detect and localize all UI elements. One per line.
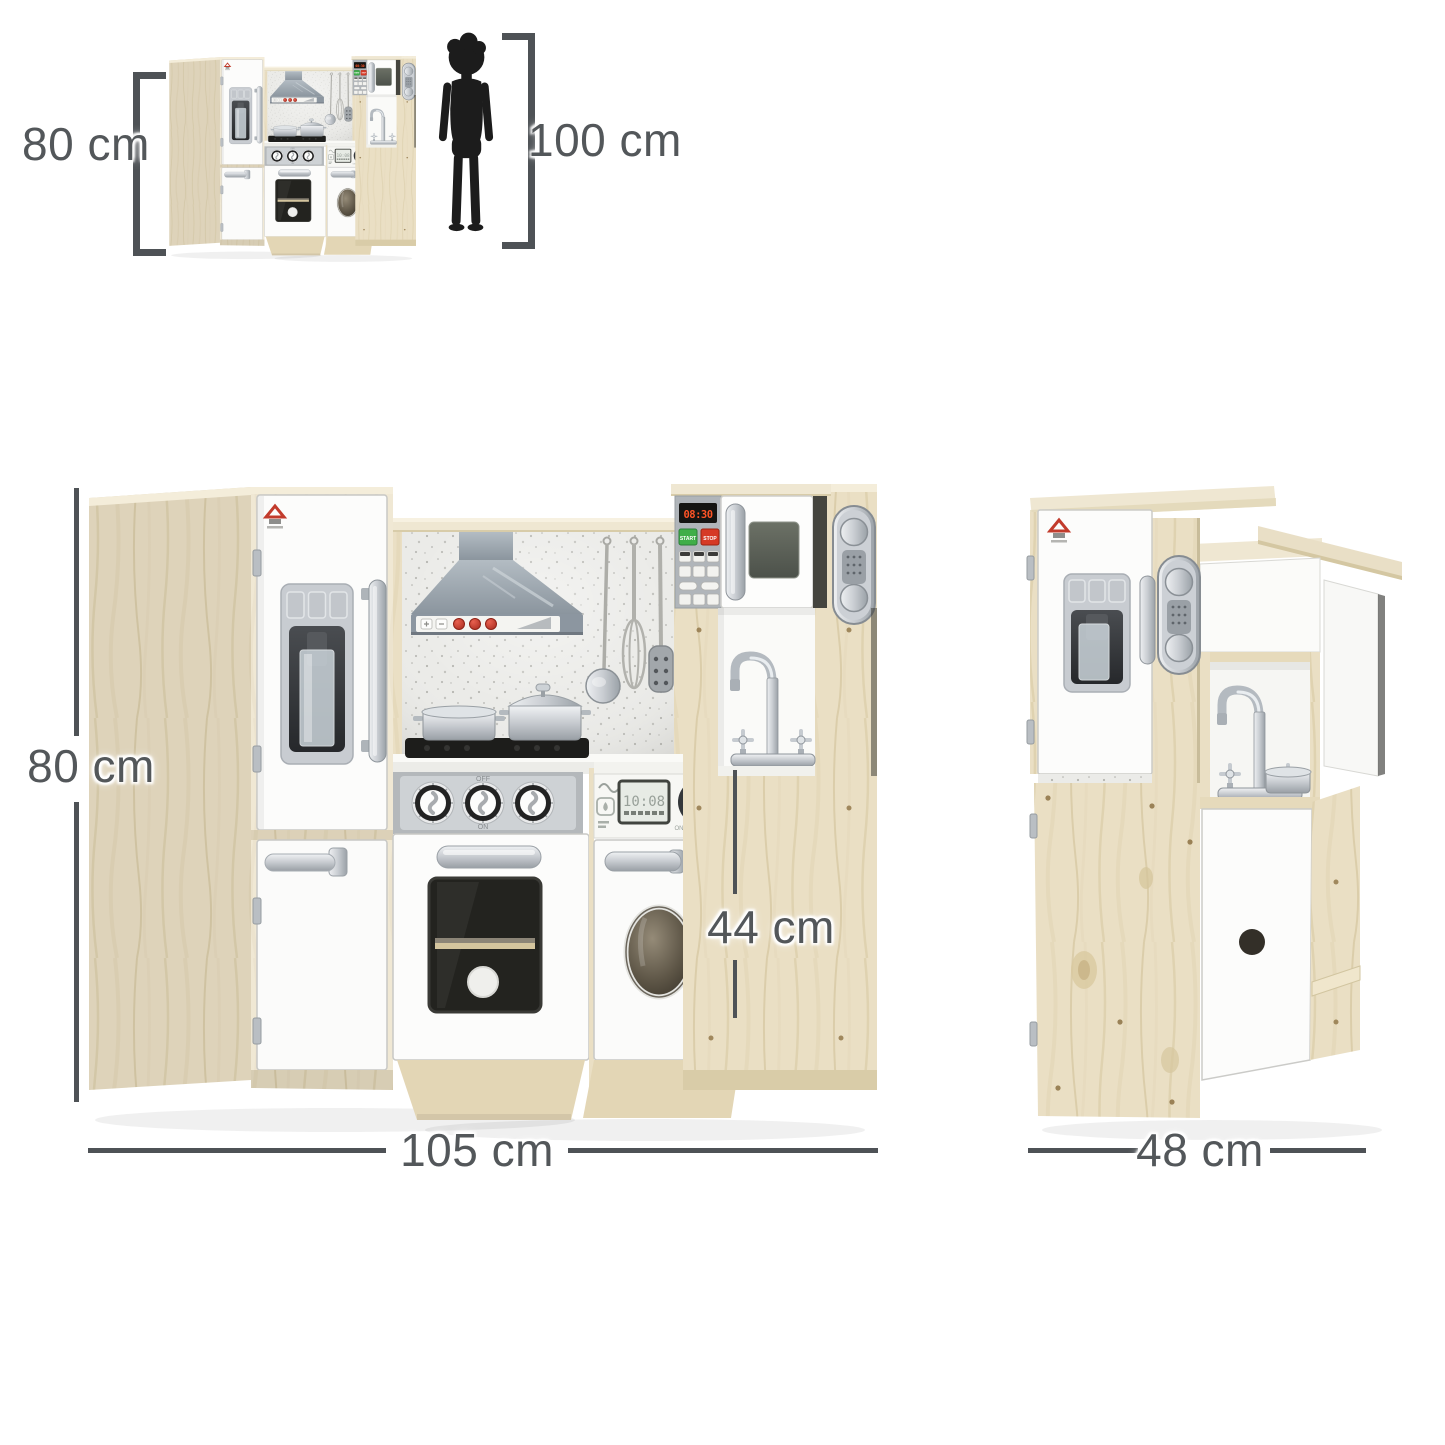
ice-dispenser-icon bbox=[1064, 574, 1130, 692]
front-height-line-top bbox=[74, 488, 79, 736]
kitchen-side-view bbox=[1022, 462, 1412, 1152]
product-dimension-diagram: OFF ON bbox=[0, 0, 1445, 1445]
microwave-handle bbox=[726, 504, 745, 600]
counter-height-line-top bbox=[733, 770, 737, 894]
front-height-line-bottom bbox=[74, 802, 79, 1102]
washer-on-label: ON bbox=[675, 826, 684, 832]
child-height-label: 100 cm bbox=[528, 116, 668, 164]
front-width-label: 105 cm bbox=[386, 1126, 568, 1174]
start-button-label: START bbox=[680, 536, 696, 542]
toy-phone-icon bbox=[1158, 556, 1200, 674]
sink-tower: 08:30 START STOP bbox=[671, 484, 877, 1090]
washer-display-time: 10:08 bbox=[623, 794, 665, 810]
counter-height-label: 44 cm bbox=[691, 903, 851, 951]
kitchen-thumbnail bbox=[168, 54, 416, 265]
thumbnail-height-label: 80 cm bbox=[22, 120, 142, 168]
microwave-clock-time: 08:30 bbox=[683, 509, 712, 521]
fridge-door-handle bbox=[1140, 576, 1155, 664]
fridge-door-handle bbox=[369, 580, 386, 762]
finger-hole bbox=[1239, 929, 1265, 955]
knob-off-label: OFF bbox=[476, 776, 490, 783]
side-depth-line-left bbox=[1028, 1148, 1138, 1153]
child-silhouette bbox=[430, 30, 502, 240]
saucepan bbox=[413, 706, 505, 740]
washer-door-handle bbox=[605, 852, 681, 871]
microwave-window bbox=[749, 522, 799, 578]
microwave: 08:30 START STOP bbox=[675, 496, 827, 608]
cooktop bbox=[405, 738, 589, 758]
front-height-label: 80 cm bbox=[16, 742, 166, 790]
oven-door-handle bbox=[437, 846, 541, 868]
stove-knob bbox=[462, 782, 504, 824]
front-width-line-left bbox=[88, 1148, 386, 1153]
ice-dispenser-icon bbox=[281, 584, 353, 764]
kitchen-front-view: OFF ON bbox=[85, 478, 877, 1150]
stove-knob bbox=[412, 782, 454, 824]
oven-unit: OFF ON bbox=[393, 772, 589, 1120]
toy-phone-icon bbox=[833, 506, 875, 624]
sink-pot bbox=[1265, 767, 1311, 793]
knob-on-label: ON bbox=[478, 824, 489, 831]
cooking-section bbox=[393, 518, 683, 774]
front-width-line-right bbox=[568, 1148, 878, 1153]
stop-button-label: STOP bbox=[703, 536, 717, 542]
counter-height-line-bottom bbox=[733, 960, 737, 1018]
side-depth-line-right bbox=[1270, 1148, 1366, 1153]
freezer-door-handle bbox=[265, 854, 335, 871]
side-depth-label: 48 cm bbox=[1127, 1126, 1273, 1174]
stove-knob bbox=[512, 782, 554, 824]
